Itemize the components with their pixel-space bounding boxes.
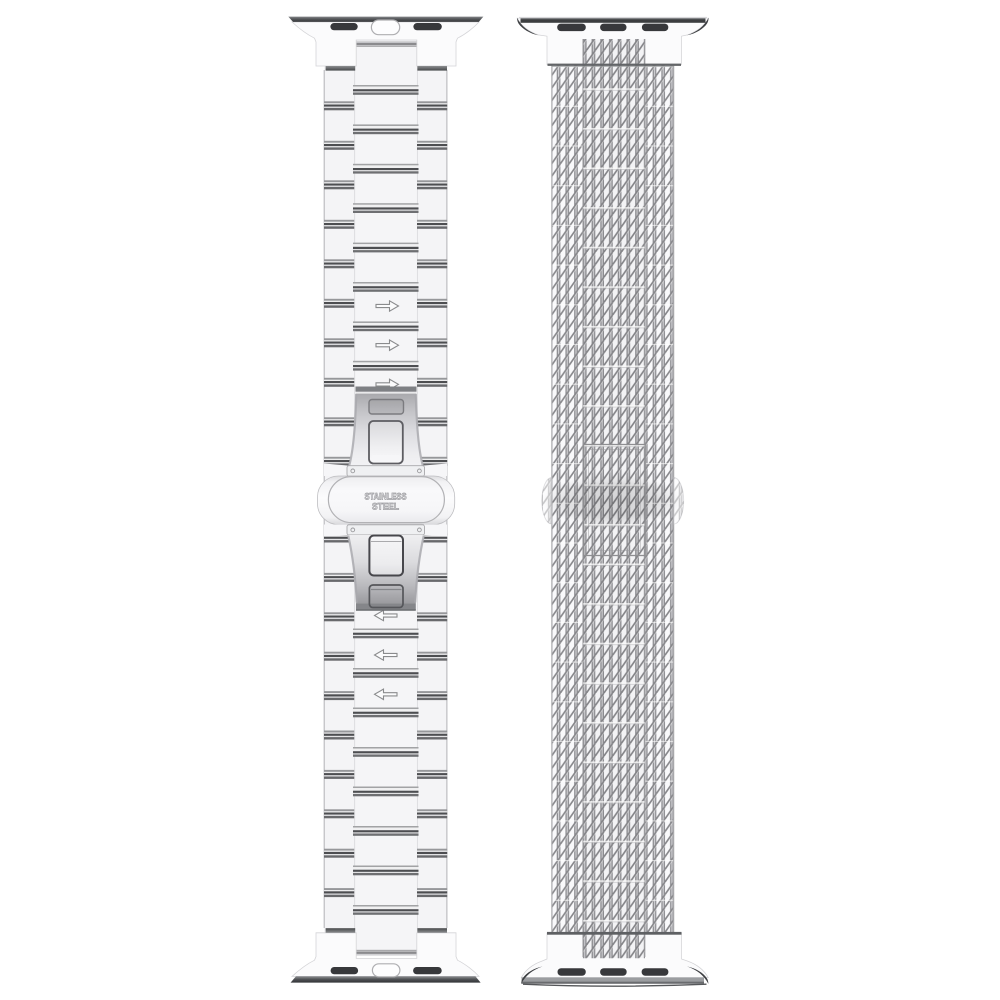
- svg-text:STEEL: STEEL: [372, 502, 399, 513]
